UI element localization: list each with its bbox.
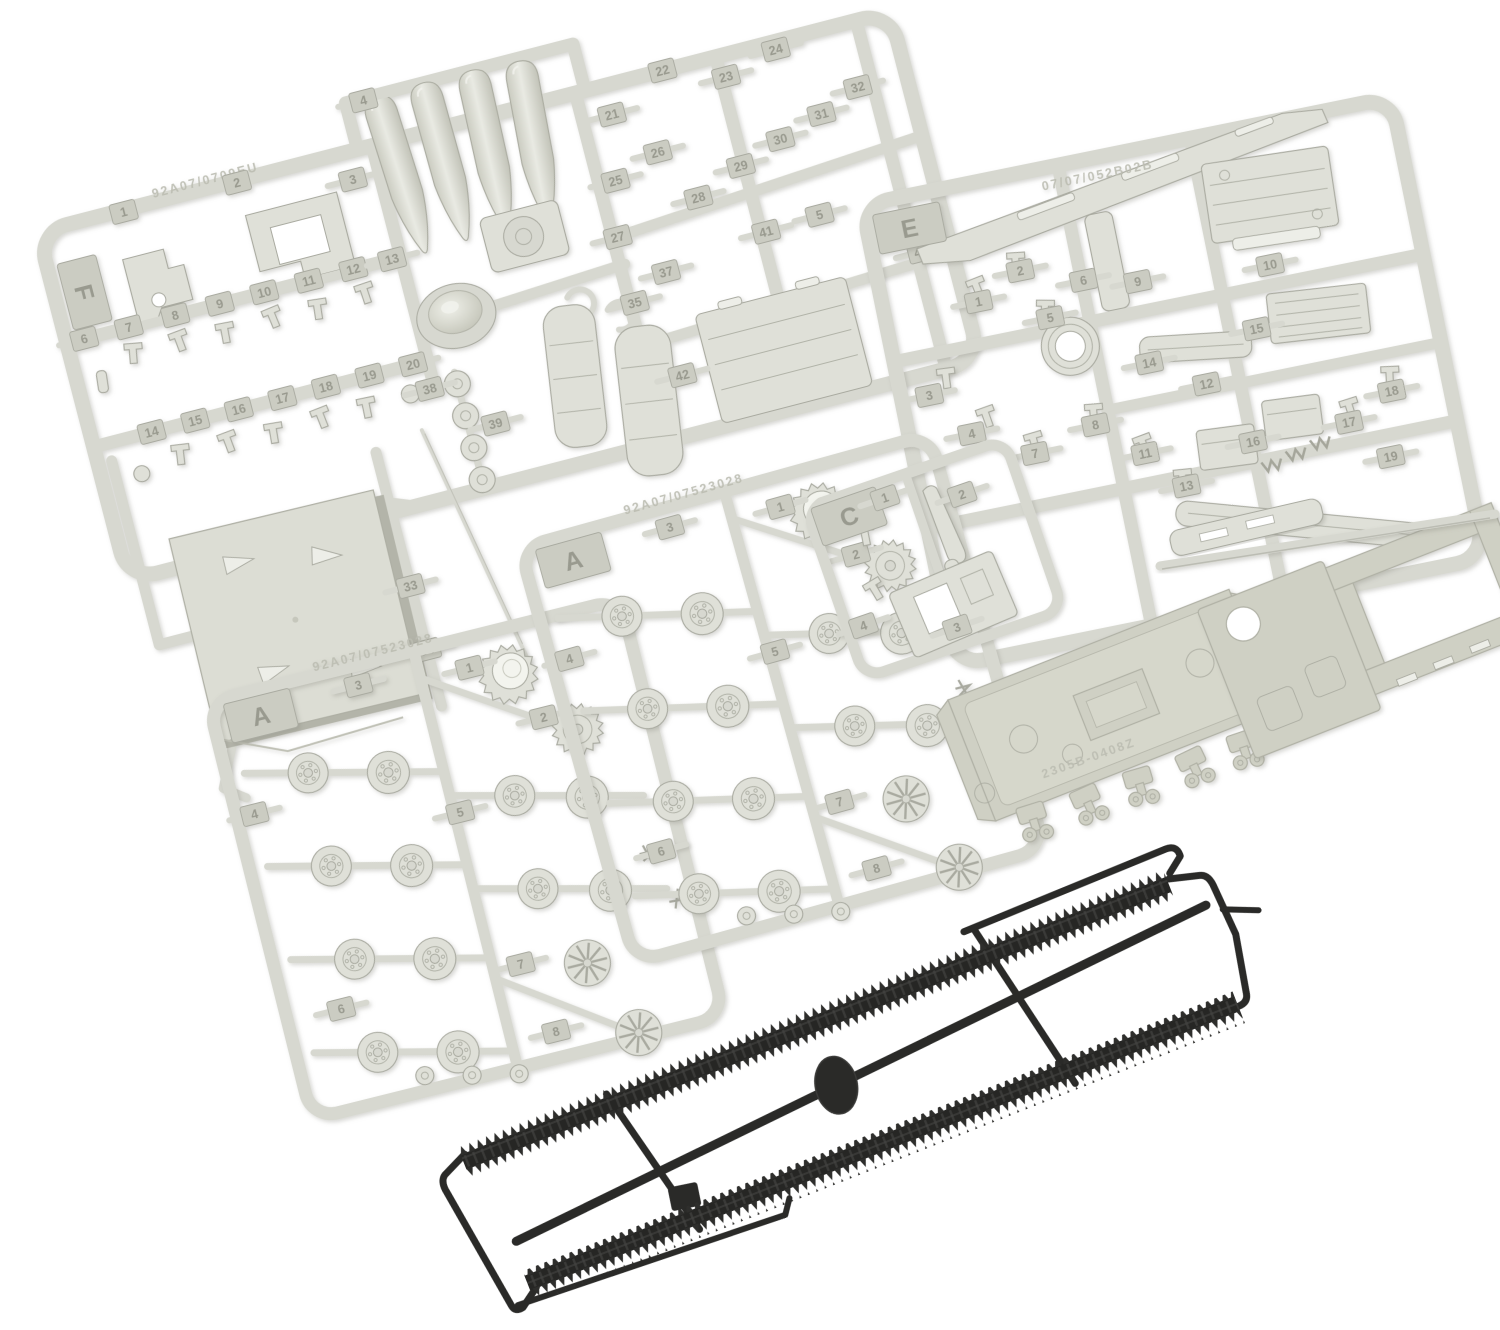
idler-wheel-part xyxy=(878,771,935,828)
road-wheel-part xyxy=(409,933,460,984)
part-number-tag: 31 xyxy=(794,98,849,130)
road-wheel-part xyxy=(491,771,539,819)
svg-text:15: 15 xyxy=(1248,321,1264,338)
road-wheel-part xyxy=(674,869,723,918)
svg-text:12: 12 xyxy=(1198,376,1214,393)
road-wheel-part xyxy=(363,747,414,798)
toolbox-part xyxy=(1261,394,1324,441)
svg-text:11: 11 xyxy=(1137,446,1153,462)
road-wheel-part xyxy=(702,680,754,732)
part-number-tag: 7 xyxy=(493,948,548,980)
road-wheel-part xyxy=(514,864,562,912)
grille-part xyxy=(1266,283,1371,344)
idler-wheel-part xyxy=(611,1005,667,1061)
svg-text:14: 14 xyxy=(1141,355,1157,372)
part-number-tag: 18 xyxy=(1364,376,1419,406)
road-wheel-part xyxy=(330,935,378,983)
svg-text:16: 16 xyxy=(1245,434,1261,451)
part-number-tag: 37 xyxy=(638,256,693,288)
svg-text:18: 18 xyxy=(1384,383,1400,400)
sprue-f: 92A07/0709EU F 1 2 3 4 5 6 7 8 9 10 11 1… xyxy=(16,0,1040,815)
idler-wheel-part xyxy=(931,839,988,896)
road-wheel-part xyxy=(676,588,728,640)
svg-text:10: 10 xyxy=(1262,257,1278,274)
road-wheel-part xyxy=(728,773,780,825)
road-wheel-part xyxy=(649,777,698,826)
road-wheel-part xyxy=(386,840,437,891)
mount-part xyxy=(479,199,570,273)
part-number-tag: 8 xyxy=(849,852,904,885)
svg-text:17: 17 xyxy=(1341,414,1357,431)
part-number-tag: 19 xyxy=(1363,442,1418,472)
part-number-tag: 5 xyxy=(792,199,847,231)
road-wheel-part xyxy=(354,1028,402,1076)
part-number-tag: 30 xyxy=(753,123,808,155)
svg-text:13: 13 xyxy=(1178,478,1194,495)
road-wheel-part xyxy=(284,749,332,797)
engine-deck-part xyxy=(1201,146,1341,254)
part-number-tag: 2 xyxy=(993,256,1048,286)
part-number-tag: 7 xyxy=(812,785,867,818)
road-wheel-part xyxy=(623,684,672,733)
part-number-tag: 6 xyxy=(314,993,369,1025)
part-number-tag: 26 xyxy=(630,136,685,168)
part-number-tag: 11 xyxy=(1118,439,1173,469)
idler-wheel-part xyxy=(560,935,616,991)
road-wheel-part xyxy=(307,842,355,890)
cylinder-part xyxy=(541,303,609,450)
svg-text:19: 19 xyxy=(1383,449,1399,466)
product-photo: 92A07/0709EU F 1 2 3 4 5 6 7 8 9 10 11 1… xyxy=(0,0,1500,1330)
road-wheel-part xyxy=(830,701,879,750)
sprue-gate-disc xyxy=(810,1053,863,1118)
model-kit-photo-canvas: 92A07/0709EU F 1 2 3 4 5 6 7 8 9 10 11 1… xyxy=(0,0,1500,1330)
part-number-tag: 21 xyxy=(584,98,639,130)
part-number-tag: 8 xyxy=(528,1016,583,1048)
